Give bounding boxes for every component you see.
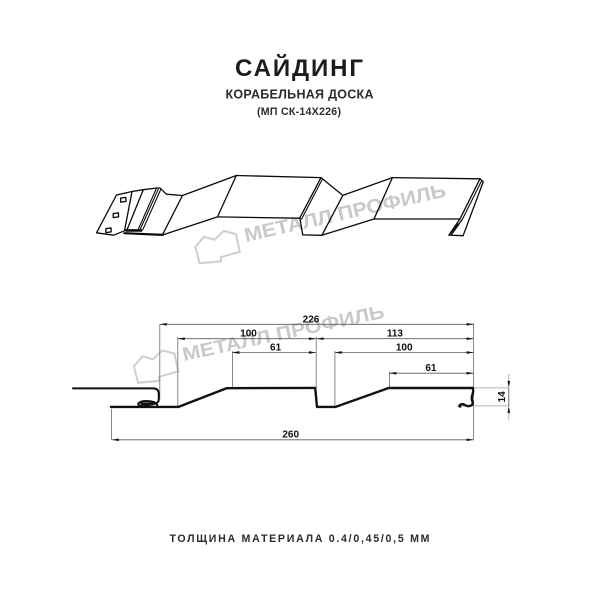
- svg-text:(МП СК-14Х226): (МП СК-14Х226): [257, 106, 341, 118]
- svg-text:КОРАБЕЛЬНАЯ ДОСКА: КОРАБЕЛЬНАЯ ДОСКА: [226, 87, 374, 101]
- svg-text:113: 113: [387, 329, 404, 340]
- svg-text:14: 14: [497, 391, 508, 403]
- svg-text:МЕТАЛЛ ПРОФИЛЬ: МЕТАЛЛ ПРОФИЛЬ: [242, 180, 448, 247]
- svg-text:61: 61: [425, 363, 437, 374]
- svg-text:61: 61: [270, 343, 282, 354]
- svg-text:МЕТАЛЛ ПРОФИЛЬ: МЕТАЛЛ ПРОФИЛЬ: [181, 302, 387, 366]
- svg-text:226: 226: [303, 314, 320, 325]
- svg-text:ТОЛЩИНА МАТЕРИАЛА 0.4/0,45/0,5: ТОЛЩИНА МАТЕРИАЛА 0.4/0,45/0,5 ММ: [170, 533, 430, 545]
- svg-text:100: 100: [240, 329, 257, 340]
- svg-text:100: 100: [396, 343, 413, 354]
- svg-text:САЙДИНГ: САЙДИНГ: [235, 54, 363, 82]
- svg-text:260: 260: [282, 430, 299, 441]
